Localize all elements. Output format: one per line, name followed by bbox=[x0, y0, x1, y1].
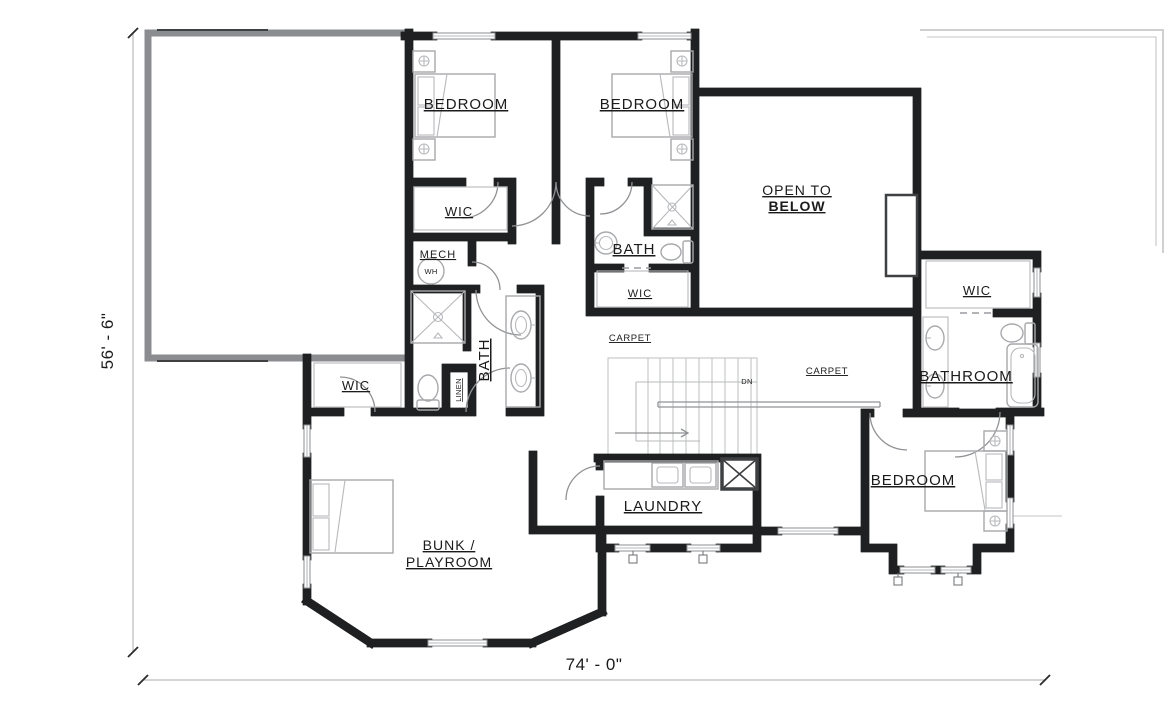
label-bath-center: BATH bbox=[476, 339, 493, 382]
label-bath-ensuite: BATH bbox=[613, 241, 656, 258]
label-bathroom-right: BATHROOM bbox=[919, 368, 1013, 385]
label-mech: MECH bbox=[420, 249, 456, 261]
bed-symbol bbox=[310, 480, 393, 553]
dimension-left: 56' - 6" bbox=[98, 313, 117, 370]
label-bedroom-top-right: BEDROOM bbox=[600, 96, 685, 113]
water-heater-label: WH bbox=[424, 267, 437, 276]
floorplan-page: DN bbox=[0, 0, 1170, 704]
label-open-to-below-1: OPEN TO bbox=[762, 182, 832, 198]
label-bunk-playroom-2: PLAYROOM bbox=[406, 554, 492, 570]
exterior-gray-walls bbox=[148, 30, 409, 361]
label-bedroom-top-left: BEDROOM bbox=[424, 96, 509, 113]
water-heater-icon: WH bbox=[418, 258, 444, 284]
label-carpet-right: CARPET bbox=[806, 366, 848, 377]
label-wic-bedroom1: WIC bbox=[445, 204, 473, 219]
toilet-icon bbox=[417, 375, 439, 410]
vanity-double-sink bbox=[506, 296, 540, 407]
label-wic-ensuite: WIC bbox=[628, 288, 652, 300]
floor-plan-canvas: DN bbox=[0, 0, 1170, 704]
label-bedroom-bottom-right: BEDROOM bbox=[871, 472, 956, 489]
label-wic-left: WIC bbox=[342, 378, 370, 393]
roof-outline bbox=[920, 30, 1163, 516]
label-wic-right: WIC bbox=[963, 283, 991, 298]
label-bunk-playroom-1: BUNK / bbox=[423, 537, 476, 553]
vanity-double-sink bbox=[923, 317, 948, 407]
label-open-to-below-2: BELOW bbox=[768, 198, 825, 214]
fireplace-chase bbox=[886, 195, 917, 276]
shower-symbol bbox=[652, 185, 693, 229]
label-linen: LINEN bbox=[454, 378, 463, 402]
toilet-icon bbox=[1001, 323, 1035, 344]
stairs-dn-label: DN bbox=[741, 377, 752, 386]
shower-symbol bbox=[411, 291, 465, 343]
label-laundry: LAUNDRY bbox=[624, 498, 702, 515]
dimension-bottom: 74' - 0" bbox=[566, 655, 623, 674]
toilet-icon bbox=[661, 241, 693, 263]
label-carpet-left: CARPET bbox=[609, 333, 651, 344]
laundry-appliances bbox=[604, 461, 718, 489]
room-labels: BEDROOM BEDROOM WIC MECH BATH WIC OPEN T… bbox=[342, 96, 1013, 570]
laundry-chute bbox=[722, 459, 757, 489]
